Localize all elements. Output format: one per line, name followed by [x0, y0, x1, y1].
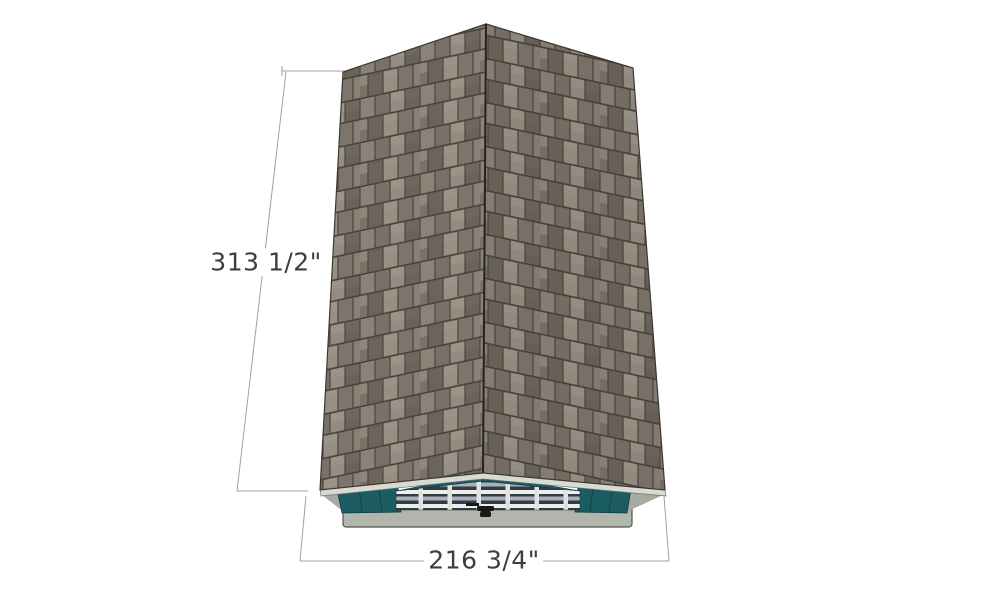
- roof-left-plane: [320, 24, 486, 490]
- width-extension-right: [664, 496, 669, 561]
- shed-roof-diagram: 313 1/2" 216 3/4": [0, 0, 1005, 601]
- width-extension-left: [300, 496, 306, 561]
- shed-roof-scene: [0, 0, 1005, 601]
- width-dimension-label: 216 3/4": [424, 546, 543, 574]
- height-dimension-line: [237, 72, 286, 491]
- height-dimension-label: 313 1/2": [206, 248, 325, 276]
- roof-right-shading: [483, 24, 665, 490]
